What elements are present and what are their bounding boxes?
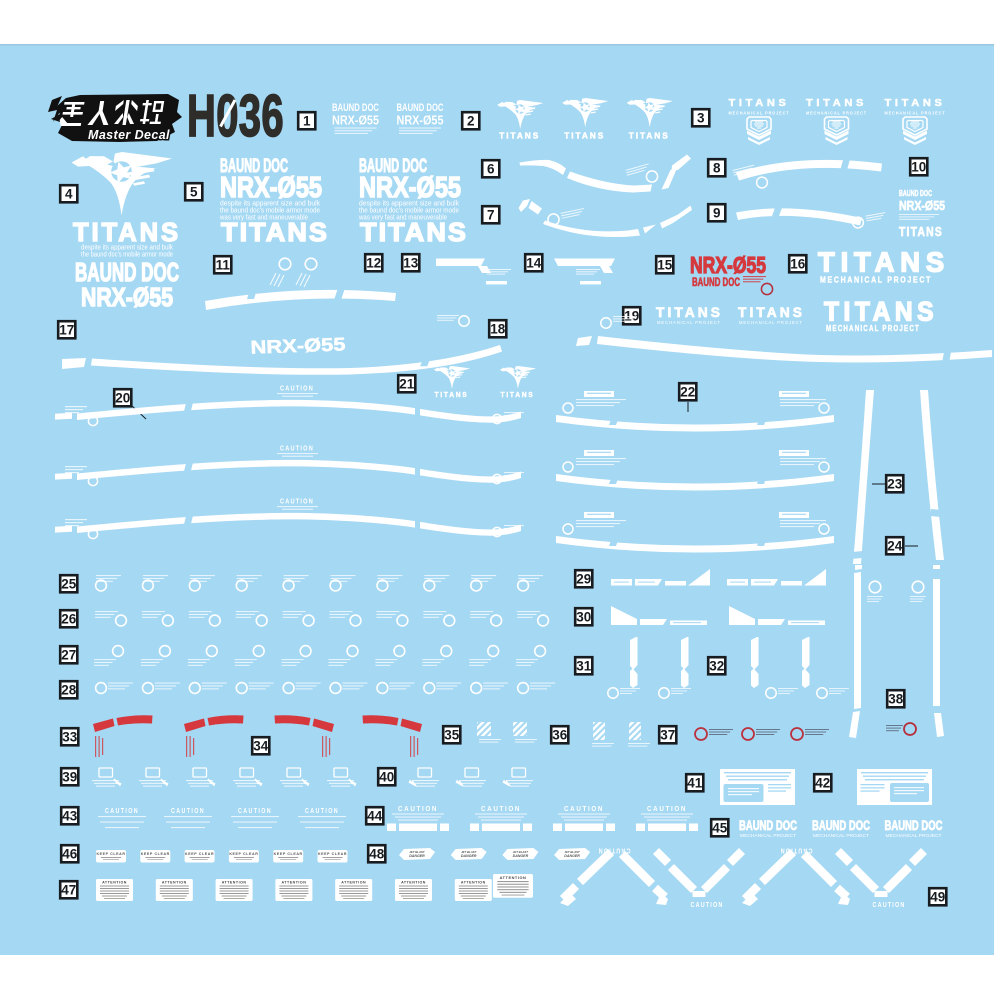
svg-text:BAUND DOC: BAUND DOC <box>332 102 379 114</box>
svg-text:NRX-Ø55: NRX-Ø55 <box>250 333 346 357</box>
svg-text:18: 18 <box>490 322 506 337</box>
svg-text:43: 43 <box>62 809 78 824</box>
svg-text:38: 38 <box>888 692 904 707</box>
svg-text:25: 25 <box>61 577 77 592</box>
svg-text:TITANS: TITANS <box>73 217 181 247</box>
svg-text:2: 2 <box>467 114 475 129</box>
svg-text:TITANS: TITANS <box>435 392 469 399</box>
svg-text:47: 47 <box>61 883 76 898</box>
svg-text:TITANS: TITANS <box>564 131 605 141</box>
svg-text:MECHANICAL PROJECT: MECHANICAL PROJECT <box>886 833 942 838</box>
svg-text:20: 20 <box>115 391 130 406</box>
svg-text:36: 36 <box>552 728 568 743</box>
svg-text:12: 12 <box>366 256 381 271</box>
svg-text:TITANS: TITANS <box>818 247 950 278</box>
svg-text:CAUTION: CAUTION <box>598 847 631 854</box>
svg-text:5: 5 <box>190 185 198 200</box>
svg-text:CAUTION: CAUTION <box>780 847 813 854</box>
svg-text:Master Decal: Master Decal <box>88 128 170 142</box>
svg-text:MECHANICAL PROJECT: MECHANICAL PROJECT <box>813 833 869 838</box>
svg-text:NRX-Ø55: NRX-Ø55 <box>81 282 173 312</box>
svg-text:TITANS: TITANS <box>738 305 805 320</box>
svg-text:NRX-Ø55: NRX-Ø55 <box>899 198 945 213</box>
svg-text:45: 45 <box>712 821 728 836</box>
svg-text:CAUTION: CAUTION <box>873 902 906 909</box>
svg-text:31: 31 <box>576 659 592 674</box>
svg-text:41: 41 <box>687 776 703 791</box>
svg-text:CAUTION: CAUTION <box>691 902 724 909</box>
svg-text:NRX-Ø55: NRX-Ø55 <box>397 114 444 128</box>
svg-text:MECHANICAL PROJECT: MECHANICAL PROJECT <box>657 320 721 326</box>
svg-text:TITANS: TITANS <box>499 131 540 141</box>
svg-text:16: 16 <box>790 257 806 272</box>
svg-text:MECHANICAL PROJECT: MECHANICAL PROJECT <box>826 324 920 333</box>
svg-text:NRX-Ø55: NRX-Ø55 <box>690 252 766 278</box>
svg-text:TITANS: TITANS <box>629 131 670 141</box>
svg-text:35: 35 <box>444 728 460 743</box>
svg-text:TITANS: TITANS <box>656 305 723 320</box>
svg-text:TITANS: TITANS <box>824 297 938 327</box>
svg-text:30: 30 <box>576 610 591 625</box>
svg-text:39: 39 <box>62 770 77 785</box>
svg-text:BAUND DOC: BAUND DOC <box>899 188 932 198</box>
svg-text:37: 37 <box>660 728 675 743</box>
svg-text:MECHANICAL PROJECT: MECHANICAL PROJECT <box>740 833 796 838</box>
svg-text:4: 4 <box>65 187 73 202</box>
svg-text:TITANS: TITANS <box>899 225 943 239</box>
svg-text:1: 1 <box>303 114 311 129</box>
svg-text:11: 11 <box>216 258 231 273</box>
svg-text:TITANS: TITANS <box>221 217 329 247</box>
svg-text:BAUND DOC: BAUND DOC <box>692 277 740 289</box>
svg-text:42: 42 <box>815 776 830 791</box>
svg-text:15: 15 <box>657 258 673 273</box>
svg-text:BAUND DOC: BAUND DOC <box>812 818 870 833</box>
svg-text:27: 27 <box>61 648 76 663</box>
svg-text:MECHANICAL PROJECT: MECHANICAL PROJECT <box>820 275 932 285</box>
svg-text:29: 29 <box>576 572 591 587</box>
svg-text:13: 13 <box>403 256 419 271</box>
svg-text:33: 33 <box>62 730 78 745</box>
svg-text:despite its apparent size and: despite its apparent size and bulk <box>81 245 173 252</box>
svg-text:8: 8 <box>713 161 721 176</box>
svg-text:34: 34 <box>253 739 269 754</box>
svg-text:28: 28 <box>61 683 77 698</box>
svg-text:21: 21 <box>399 377 415 392</box>
svg-text:24: 24 <box>887 539 903 554</box>
svg-text:BAUND DOC: BAUND DOC <box>739 818 797 833</box>
svg-text:49: 49 <box>930 890 945 905</box>
svg-text:6: 6 <box>487 162 495 177</box>
svg-text:40: 40 <box>379 770 394 785</box>
svg-text:17: 17 <box>59 323 74 338</box>
svg-text:26: 26 <box>61 612 77 627</box>
svg-text:32: 32 <box>709 659 724 674</box>
svg-text:3: 3 <box>697 111 705 126</box>
svg-text:48: 48 <box>369 847 385 862</box>
svg-text:14: 14 <box>526 256 542 271</box>
svg-text:BAUND DOC: BAUND DOC <box>885 818 943 833</box>
svg-text:H036: H036 <box>187 84 284 150</box>
svg-text:TITANS: TITANS <box>360 217 468 247</box>
svg-text:7: 7 <box>487 208 495 223</box>
svg-text:23: 23 <box>887 477 903 492</box>
svg-text:44: 44 <box>367 809 383 824</box>
svg-text:BAUND DOC: BAUND DOC <box>397 102 444 114</box>
svg-text:MECHANICAL PROJECT: MECHANICAL PROJECT <box>739 320 803 326</box>
svg-text:22: 22 <box>680 385 695 400</box>
svg-text:9: 9 <box>713 206 721 221</box>
svg-text:NRX-Ø55: NRX-Ø55 <box>332 114 379 128</box>
svg-text:TITANS: TITANS <box>501 392 535 399</box>
svg-text:46: 46 <box>62 847 78 862</box>
svg-text:10: 10 <box>911 160 926 175</box>
